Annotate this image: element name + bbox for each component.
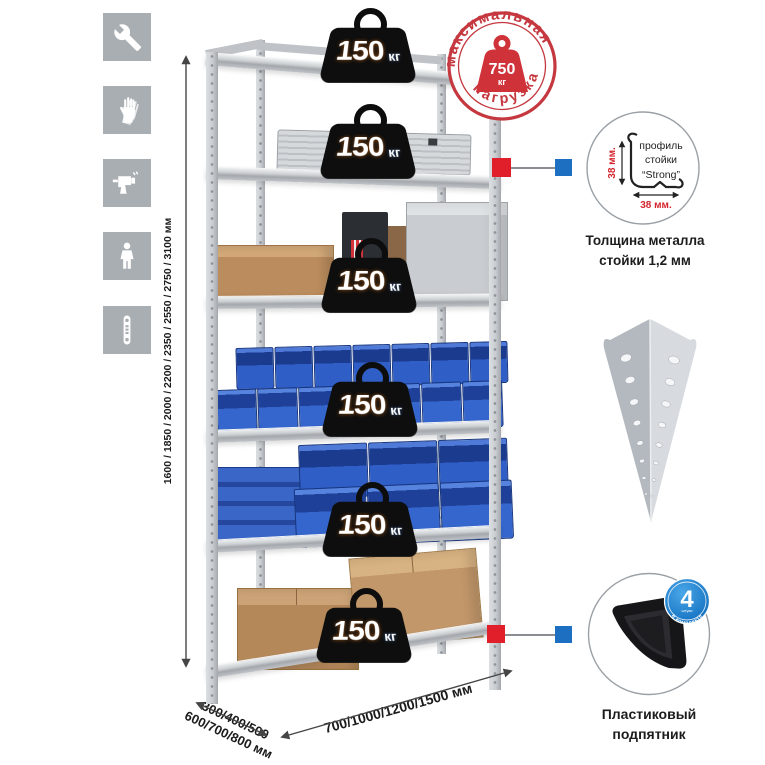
badge-value: 150 xyxy=(334,267,386,299)
kit-count-badge: 4 штуки в комплекте xyxy=(663,577,711,625)
profile-caption: Толщина металла стойки 1,2 мм xyxy=(570,231,720,270)
profile-label-line3: “Strong” xyxy=(642,169,680,181)
shelf-load-badge: 150кг xyxy=(318,588,410,660)
depth-dimension-label: 300/400/500 600/700/800 мм xyxy=(162,684,302,765)
box-flap-line xyxy=(296,589,297,605)
gloves-icon xyxy=(103,86,151,134)
foot-caption: Пластиковый подпятник xyxy=(574,704,724,745)
storage-bin xyxy=(235,347,274,390)
shelf-load-badge: 150кг xyxy=(324,362,416,434)
shelf-load-badge: 150кг xyxy=(324,482,416,554)
callout-blue-square xyxy=(555,159,572,176)
stamp-unit: кг xyxy=(498,77,507,87)
badge-value: 150 xyxy=(335,511,387,543)
profile-label-line2: стойки xyxy=(645,154,677,166)
case-latch xyxy=(428,138,437,145)
height-dimension-label: 1600 / 1850 / 2000 / 2200 / 2350 / 2550 … xyxy=(162,181,174,521)
profile-vertical-dim: 38 мм. xyxy=(607,147,618,179)
width-dimension-label: 700/1000/1200/1500 мм xyxy=(290,671,506,745)
callout-red-square xyxy=(487,625,505,643)
badge-value: 150 xyxy=(335,391,387,423)
profile-label-line1: профиль xyxy=(639,140,683,152)
foot-caption-line2: подпятник xyxy=(574,724,724,744)
cardboard-box xyxy=(215,245,334,302)
wrench-icon xyxy=(103,13,151,61)
corner-post-image xyxy=(592,306,708,534)
profile-caption-line2: стойки 1,2 мм xyxy=(570,251,720,271)
badge-unit: кг xyxy=(388,279,402,294)
shelf-load-badge: 150кг xyxy=(323,238,415,310)
badge-value: 150 xyxy=(333,133,385,165)
callout-line-bottom xyxy=(498,634,558,636)
kit-count-unit: штуки xyxy=(681,608,692,613)
level-icon xyxy=(103,306,151,354)
product-infographic: 150кг 150кг 150кг 150кг 150кг 150кг макс… xyxy=(0,0,765,765)
foot-caption-line1: Пластиковый xyxy=(574,704,724,724)
drill-icon xyxy=(103,159,151,207)
shelf-load-badge: 150кг xyxy=(322,104,414,176)
badge-value: 150 xyxy=(329,617,381,649)
callout-blue-square xyxy=(555,626,572,643)
storage-bin xyxy=(274,346,313,389)
badge-unit: кг xyxy=(389,523,403,538)
badge-value: 150 xyxy=(333,37,385,69)
badge-unit: кг xyxy=(383,629,397,644)
profile-caption-line1: Толщина металла xyxy=(570,231,720,251)
box-flap-line xyxy=(411,554,414,572)
rack-post-front-left xyxy=(206,52,218,704)
shelf-load-badge: 150кг xyxy=(322,8,414,80)
max-load-stamp: максимальная нагрузка 750 кг xyxy=(443,7,561,125)
badge-unit: кг xyxy=(387,145,401,160)
stamp-value: 750 xyxy=(489,61,516,78)
post-profile-detail: 38 мм. 38 мм. профиль стойки “Strong” xyxy=(584,109,702,227)
person-icon xyxy=(103,232,151,280)
callout-red-square xyxy=(492,158,511,177)
profile-horizontal-dim: 38 мм. xyxy=(640,200,672,211)
badge-unit: кг xyxy=(387,49,401,64)
badge-unit: кг xyxy=(389,403,403,418)
storage-bin xyxy=(430,342,469,385)
